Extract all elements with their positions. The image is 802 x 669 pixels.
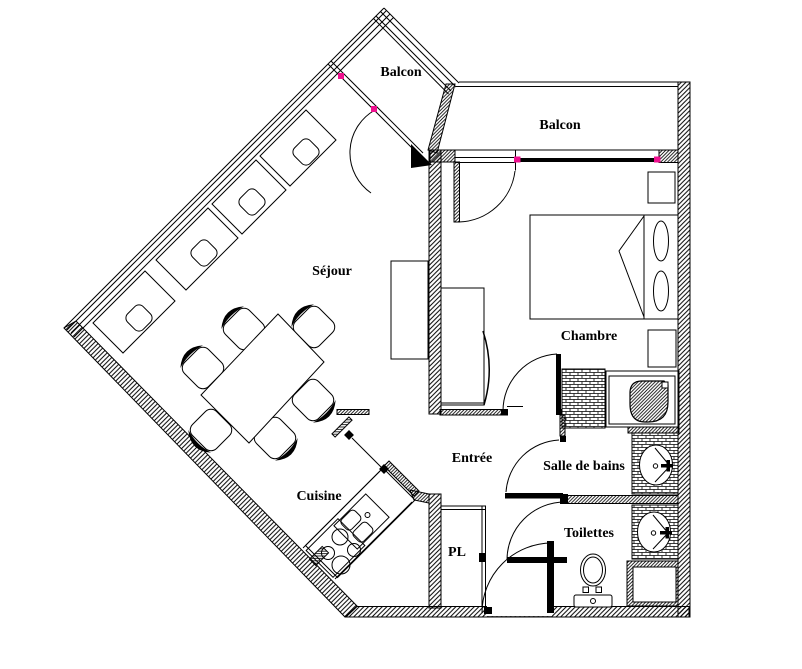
svg-text:Salle de bains: Salle de bains — [543, 459, 625, 474]
svg-text:Séjour: Séjour — [312, 264, 352, 279]
svg-text:Cuisine: Cuisine — [296, 489, 341, 504]
svg-text:Toilettes: Toilettes — [564, 526, 615, 541]
svg-text:Balcon: Balcon — [380, 65, 421, 80]
svg-text:Chambre: Chambre — [561, 329, 618, 344]
svg-text:PL: PL — [448, 545, 466, 560]
svg-text:Balcon: Balcon — [539, 118, 580, 133]
svg-text:Entrée: Entrée — [452, 451, 492, 466]
